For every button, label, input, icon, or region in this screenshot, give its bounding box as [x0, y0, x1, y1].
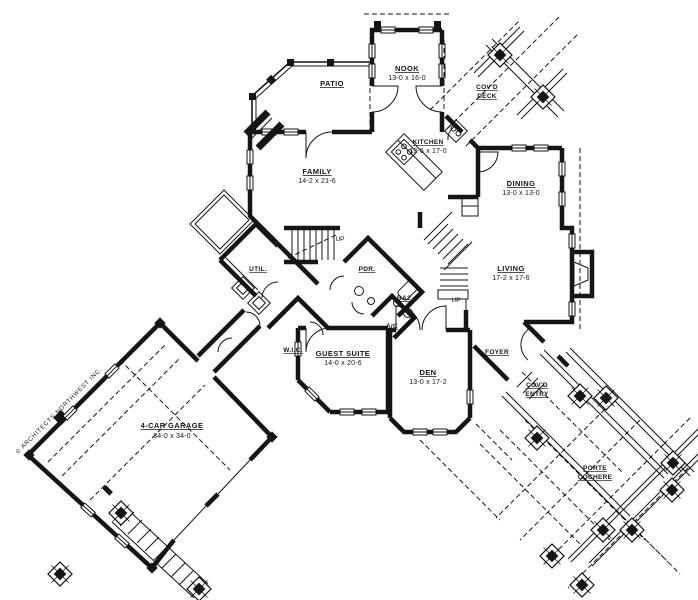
dims-nook: 13-0 x 16-0 — [388, 75, 426, 82]
dims-family: 14-2 x 21-6 — [298, 178, 336, 185]
label-porte-1: PORTE — [583, 465, 607, 472]
dims-guest: 14-0 x 20-6 — [324, 360, 362, 367]
label-covd-deck-2: DECK — [477, 93, 497, 100]
label-patio: PATIO — [320, 79, 344, 88]
rear-stoop — [190, 190, 254, 254]
dims-kitchen: 13-6 x 17-0 — [409, 148, 447, 155]
label-ba2: BA2 — [397, 295, 411, 302]
main-stair — [424, 212, 472, 312]
door-arcs — [218, 86, 544, 360]
label-garage: 4-CAR GARAGE — [141, 421, 204, 430]
rear-stair — [288, 230, 338, 260]
garage-walls — [28, 323, 272, 568]
windows — [63, 27, 575, 548]
label-covd-entry-2: ENTRY — [525, 391, 549, 398]
label-dining: DINING — [507, 179, 536, 188]
label-living: LIVING — [497, 264, 524, 273]
dims-den: 13-0 x 17-2 — [409, 379, 447, 386]
label-wic: W.I.C. — [283, 347, 303, 354]
dims-dining: 13-0 x 13-0 — [502, 190, 540, 197]
label-foyer: FOYER — [485, 349, 509, 356]
floor-plan-drawing: PATIO NOOK 13-0 x 16-0 COV'D DECK KITCHE… — [0, 0, 698, 600]
label-util: UTIL. — [249, 266, 267, 273]
living-fireplace — [572, 252, 592, 296]
label-pdr: PDR. — [359, 266, 376, 273]
label-family: FAMILY — [302, 167, 331, 176]
label-den: DEN — [419, 368, 436, 377]
dims-garage: 34-0 x 34-0 — [153, 433, 191, 440]
label-up-main-stair: UP — [451, 297, 460, 304]
label-ac: A/C — [386, 323, 398, 330]
label-covd-entry-1: COV'D — [526, 382, 548, 389]
copyright-text: © ARCHITECTS NORTHWEST INC. — [14, 366, 103, 455]
label-porte-2: COCHERE — [578, 474, 613, 481]
main-house-walls — [198, 30, 572, 432]
label-kitchen: KITCHEN — [413, 139, 444, 146]
label-nook: NOOK — [395, 64, 419, 73]
label-covd-deck-1: COV'D — [476, 84, 498, 91]
room-labels: PATIO NOOK 13-0 x 16-0 COV'D DECK KITCHE… — [14, 64, 612, 481]
floor-plan-page: PATIO NOOK 13-0 x 16-0 COV'D DECK KITCHE… — [0, 0, 698, 600]
kitchen-island — [386, 134, 478, 216]
dims-living: 17-2 x 17-6 — [492, 275, 530, 282]
label-guest: GUEST SUITE — [316, 349, 370, 358]
label-up-rear-stair: UP — [335, 236, 344, 243]
